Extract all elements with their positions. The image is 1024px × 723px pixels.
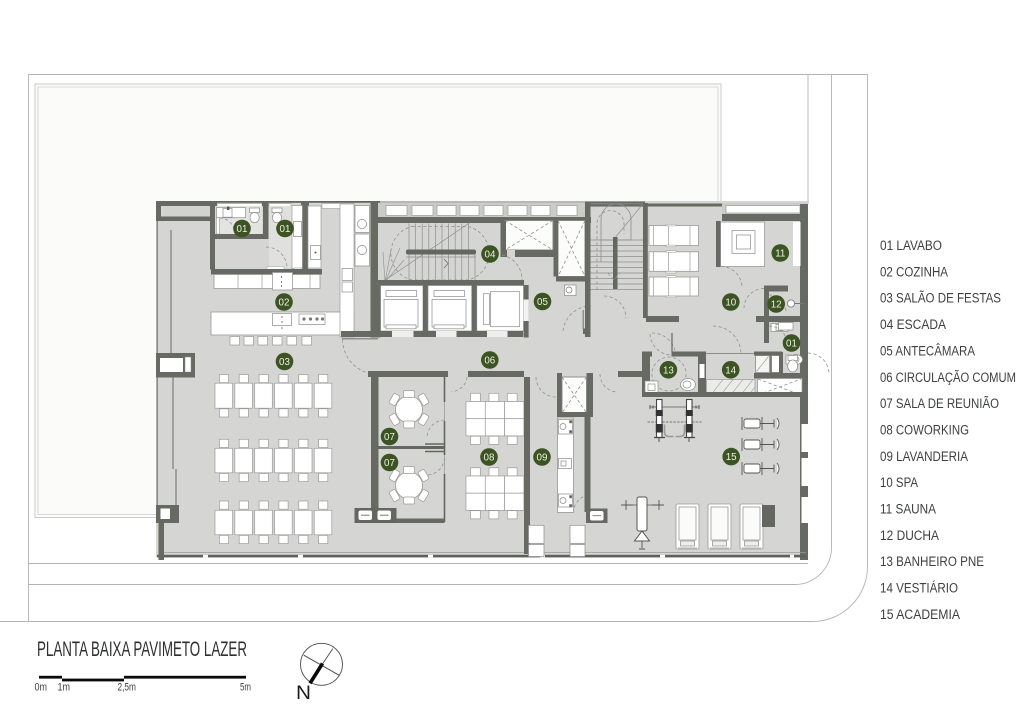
svg-text:15 ACADEMIA: 15 ACADEMIA [880,607,960,622]
svg-text:07: 07 [384,432,395,443]
svg-text:0m: 0m [35,682,48,694]
svg-text:01: 01 [237,224,248,235]
svg-text:08: 08 [484,453,495,464]
svg-text:09: 09 [537,453,548,464]
svg-text:06 CIRCULAÇÃO COMUM: 06 CIRCULAÇÃO COMUM [880,370,1016,385]
svg-text:05 ANTECÂMARA: 05 ANTECÂMARA [880,343,975,358]
svg-text:01 LAVABO: 01 LAVABO [880,238,942,253]
svg-text:03: 03 [279,357,290,368]
svg-text:1m: 1m [58,682,71,694]
svg-text:11: 11 [775,249,785,260]
svg-text:14 VESTIÁRIO: 14 VESTIÁRIO [880,581,958,596]
svg-text:13: 13 [663,365,674,376]
svg-text:14: 14 [725,365,736,376]
svg-text:04 ESCADA: 04 ESCADA [880,317,946,332]
svg-text:01: 01 [280,224,291,235]
svg-text:08 COWORKING: 08 COWORKING [880,423,969,438]
svg-text:2,5m: 2,5m [118,682,137,694]
svg-text:PLANTA BAIXA PAVIMETO LAZER: PLANTA BAIXA PAVIMETO LAZER [37,637,247,661]
svg-text:5m: 5m [240,682,251,694]
svg-text:12: 12 [771,300,782,311]
svg-text:07: 07 [384,458,395,469]
svg-text:N: N [296,683,311,704]
svg-text:10: 10 [725,298,736,309]
svg-text:10 SPA: 10 SPA [880,475,918,490]
svg-text:11 SAUNA: 11 SAUNA [880,502,936,517]
svg-text:07 SALA DE REUNIÃO: 07 SALA DE REUNIÃO [880,396,999,411]
svg-text:03 SALÃO DE FESTAS: 03 SALÃO DE FESTAS [880,291,1001,306]
svg-text:02: 02 [279,298,290,309]
svg-text:15: 15 [726,452,737,463]
svg-text:02 COZINHA: 02 COZINHA [880,264,948,279]
svg-text:09 LAVANDERIA: 09 LAVANDERIA [880,449,968,464]
svg-text:01: 01 [786,339,797,350]
svg-text:05: 05 [537,297,548,308]
svg-text:12 DUCHA: 12 DUCHA [880,528,939,543]
svg-text:13 BANHEIRO PNE: 13 BANHEIRO PNE [880,554,984,569]
svg-text:04: 04 [485,250,496,261]
svg-text:06: 06 [484,356,495,367]
